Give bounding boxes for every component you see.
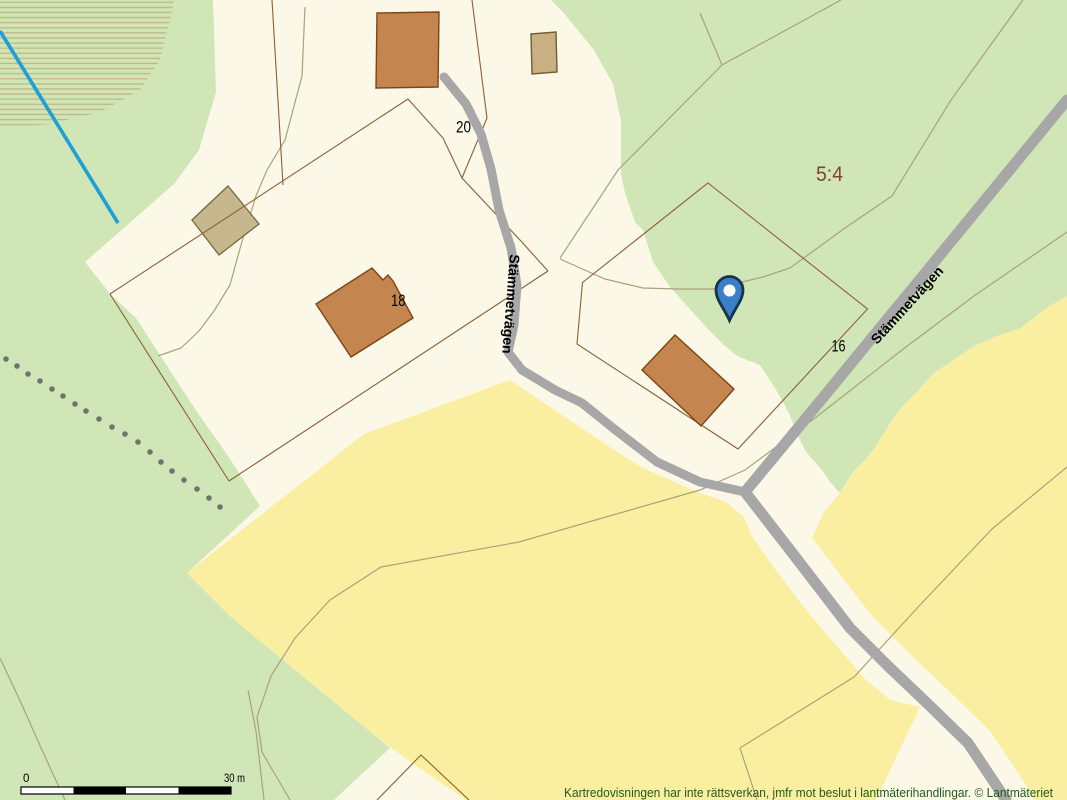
- svg-text:Kartredovisningen har inte rät: Kartredovisningen har inte rättsverkan, …: [564, 785, 1053, 800]
- svg-text:16: 16: [832, 338, 846, 356]
- svg-text:18: 18: [391, 292, 406, 310]
- svg-text:20: 20: [456, 118, 471, 137]
- svg-text:0: 0: [23, 773, 29, 785]
- svg-text:5:4: 5:4: [816, 163, 843, 186]
- svg-text:30 m: 30 m: [224, 773, 245, 785]
